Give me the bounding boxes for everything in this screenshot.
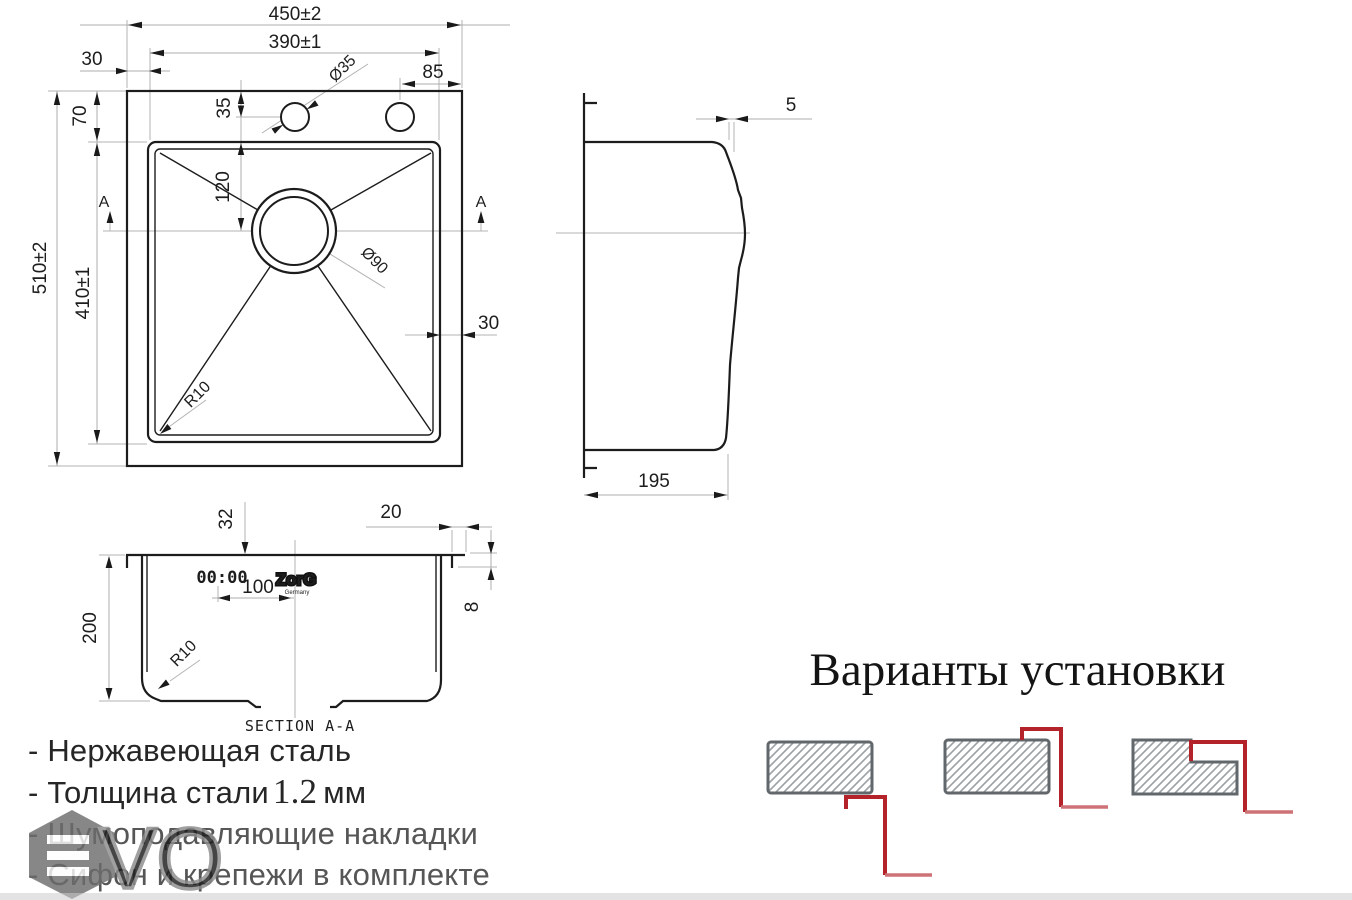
brand-logo-name: ZorG — [276, 570, 317, 589]
drawing-canvas: 450±2 390±1 30 85 Ø35 70 35 120 510±2 41… — [0, 0, 1352, 900]
dim-section-depth: 200 — [80, 612, 101, 644]
dimension-arrows-side — [585, 116, 748, 498]
dim-inner-height: 410±1 — [73, 267, 94, 320]
section-marker-right: A — [476, 194, 487, 211]
watermark-evo: V O — [29, 810, 223, 900]
install-option-flushmount — [945, 729, 1108, 807]
dim-hole-right: 85 — [422, 62, 443, 83]
watermark-letter-v: V — [99, 811, 156, 900]
dim-section-rim: 20 — [380, 502, 401, 523]
dim-inner-width: 390±1 — [269, 32, 322, 53]
dim-rim-right: 30 — [478, 313, 499, 334]
dim-hole-diameter: Ø35 — [326, 52, 359, 85]
sink-outline — [127, 91, 462, 466]
dim-side-lip: 5 — [786, 95, 797, 116]
bottom-scan-band — [0, 893, 1352, 900]
drain-outer-circle — [252, 189, 336, 273]
dim-section-flange: 32 — [216, 508, 237, 529]
dim-side-depth: 195 — [638, 471, 670, 492]
watermark-letter-e — [47, 835, 89, 876]
dim-section-radius: R10 — [167, 637, 200, 670]
dim-drain-from-top: 120 — [213, 171, 234, 203]
top-view: 450±2 390±1 30 85 Ø35 70 35 120 510±2 41… — [30, 4, 510, 466]
sink-profile-1 — [846, 797, 885, 875]
faucet-hole-left — [281, 103, 309, 131]
countertop-block-3 — [1133, 740, 1237, 794]
dim-corner-radius: R10 — [181, 378, 214, 411]
brand-logo-country: Germany — [285, 590, 310, 596]
dim-outer-width: 450±2 — [269, 4, 322, 25]
brand-logo: ZorG ZorG Germany — [276, 570, 317, 596]
sink-outer-edge — [127, 91, 462, 466]
section-marker-left: A — [99, 194, 110, 211]
side-outline — [584, 93, 745, 478]
countertop-block-1 — [768, 742, 872, 793]
side-thin-lines — [556, 119, 812, 500]
dim-hole-from-top: 35 — [214, 97, 235, 118]
section-view: 32 20 200 100 8 R10 00:00 ZorG ZorG Germ… — [80, 502, 497, 735]
countertop-block-2 — [945, 740, 1049, 793]
install-option-recessed — [1133, 740, 1293, 812]
faucet-hole-right — [386, 103, 414, 131]
dim-section-lip: 8 — [462, 602, 483, 613]
installation-diagrams — [768, 729, 1293, 875]
dim-offset-left: 30 — [81, 49, 102, 70]
watermark-letter-o: O — [157, 811, 224, 900]
dim-drain-diameter: Ø90 — [357, 244, 390, 277]
section-title: SECTION A-A — [245, 717, 355, 735]
install-option-overmount — [768, 742, 932, 875]
technical-drawing-page: { "dims": { "w_outer": "450±2", "w_inner… — [0, 0, 1352, 900]
side-view: 5 195 — [556, 93, 812, 500]
section-thin-lines — [99, 502, 497, 718]
pads-mark: 00:00 — [196, 568, 247, 588]
dim-rim-top: 70 — [70, 105, 91, 126]
dim-outer-height: 510±2 — [30, 242, 51, 295]
